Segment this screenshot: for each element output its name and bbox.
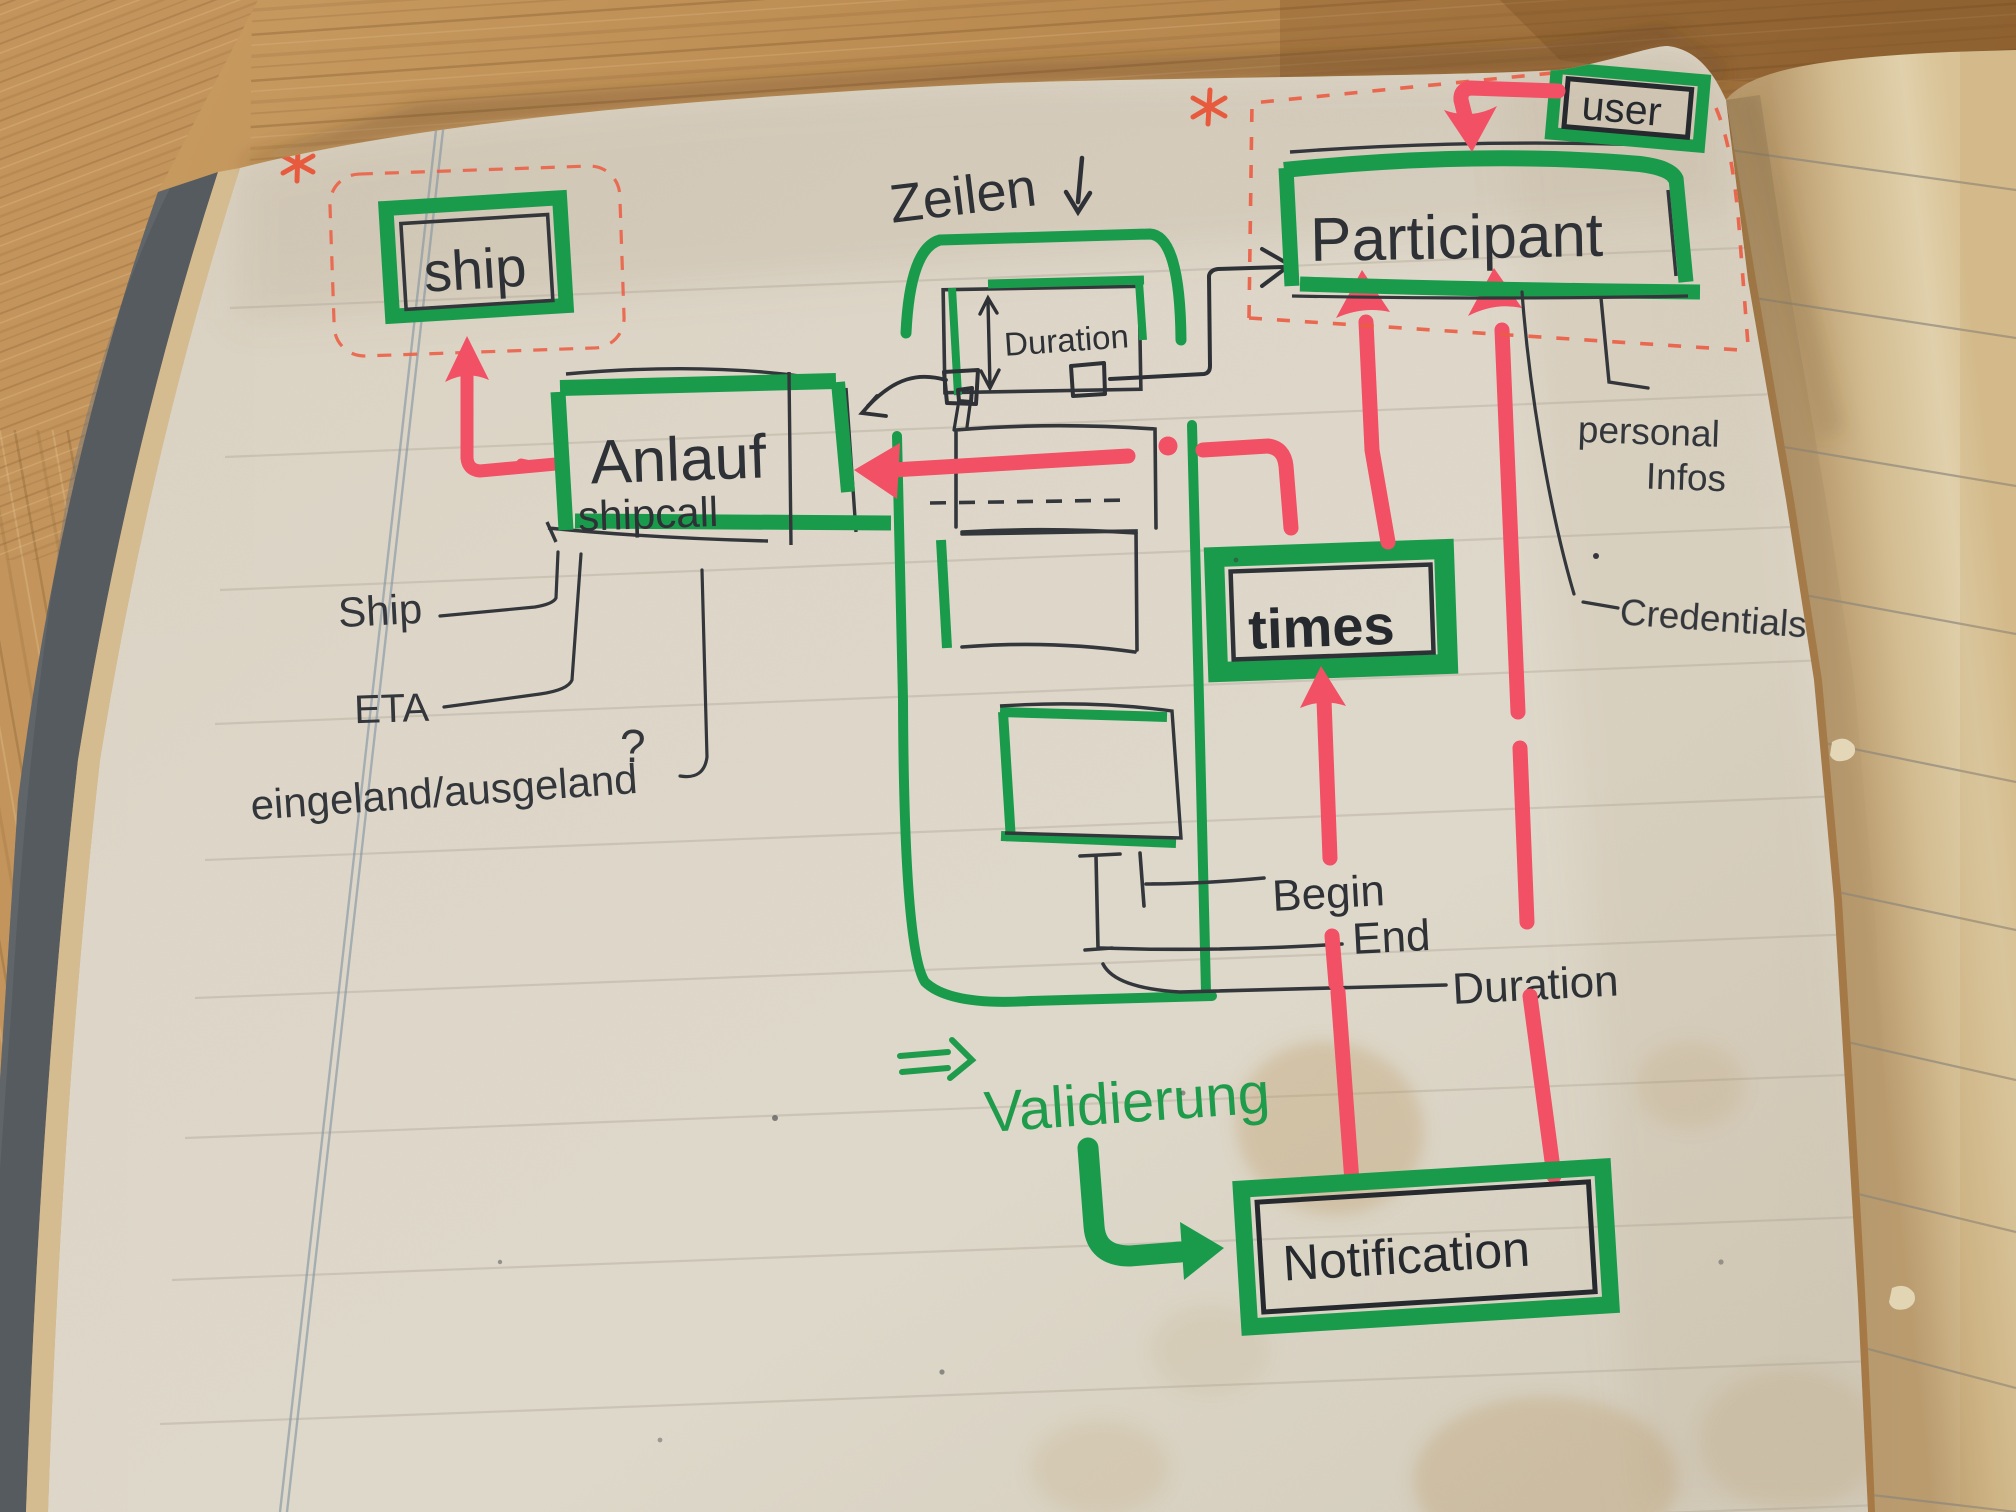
svg-text:shipcall: shipcall (577, 488, 719, 540)
svg-text:?: ? (620, 720, 646, 772)
svg-text:Infos: Infos (1645, 455, 1727, 499)
svg-text:End: End (1351, 911, 1432, 964)
svg-text:user: user (1580, 82, 1663, 135)
svg-text:personal: personal (1577, 409, 1720, 455)
svg-text:times: times (1247, 593, 1395, 661)
svg-text:Begin: Begin (1271, 866, 1386, 921)
svg-text:Ship: Ship (337, 585, 423, 636)
svg-text:Anlauf: Anlauf (589, 422, 768, 497)
svg-text:Participant: Participant (1310, 201, 1604, 275)
svg-text:ETA: ETA (353, 686, 430, 733)
svg-text:ship: ship (422, 235, 528, 304)
